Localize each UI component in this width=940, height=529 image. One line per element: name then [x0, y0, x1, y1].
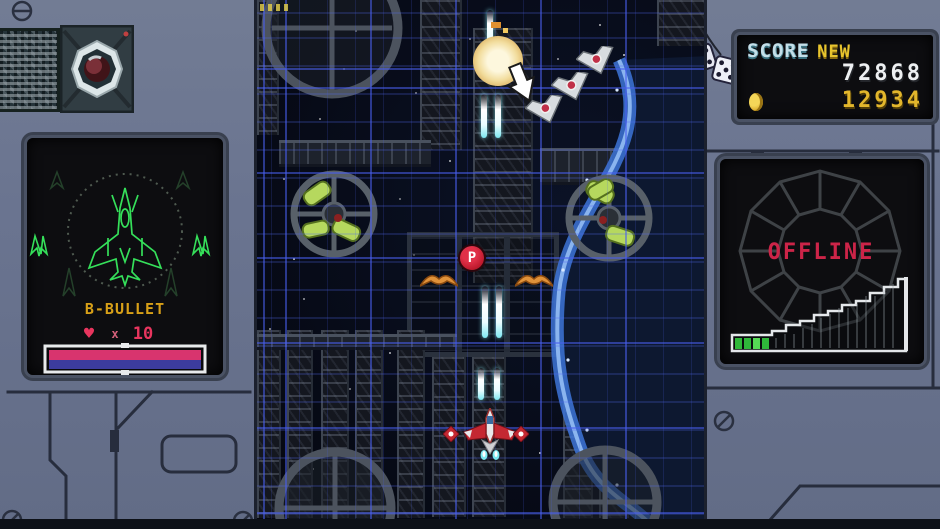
new-label: NEW [817, 42, 851, 62]
bullet-streak [478, 368, 484, 400]
status-offline: OFFLINE [768, 240, 875, 265]
green-satellite-right [569, 177, 649, 258]
lives-times: x [111, 327, 118, 341]
bullet-streak [496, 286, 502, 338]
score-value: 72868 [842, 61, 923, 86]
green-satellite-left [294, 174, 374, 254]
bullet-streak [482, 286, 488, 338]
player-ship [460, 408, 520, 460]
orange-wing-enemy [420, 270, 458, 288]
security-camera-icon [60, 25, 134, 113]
ship-status-panel: B-BULLET ♥ x 10 [27, 138, 223, 375]
weapon-name: B-BULLET [85, 300, 165, 318]
orange-wing-enemy [515, 270, 553, 288]
radar-status-panel: OFFLINE [720, 159, 924, 364]
lives-count: 10 [133, 324, 153, 344]
score-label: SCORE [747, 40, 809, 62]
heart-icon: ♥ [84, 324, 95, 344]
option-pod [443, 426, 459, 442]
weapon-energy-bar [45, 343, 205, 375]
score-header: SCORE NEW [747, 40, 851, 62]
qr-code-icon [0, 28, 60, 112]
coins-value: 12934 [842, 88, 923, 113]
bottom-border [0, 519, 940, 529]
game-playfield[interactable]: P [254, 0, 707, 529]
explosion-spark [503, 28, 508, 33]
explosion-spark [491, 22, 501, 28]
powerup-p: P [460, 246, 484, 270]
bullet-streak [494, 368, 500, 400]
player-ship-wireframe [89, 188, 161, 285]
coin-icon [749, 93, 763, 111]
bullet-streak [495, 94, 501, 138]
score-panel: SCORE NEW 72868 12934 [737, 35, 933, 119]
edge-markings [260, 4, 288, 11]
game-screen: SCORE NEW 72868 12934 [0, 0, 940, 529]
bullet-streak [481, 94, 487, 138]
option-pod [513, 426, 529, 442]
arrow-cursor [503, 62, 543, 104]
